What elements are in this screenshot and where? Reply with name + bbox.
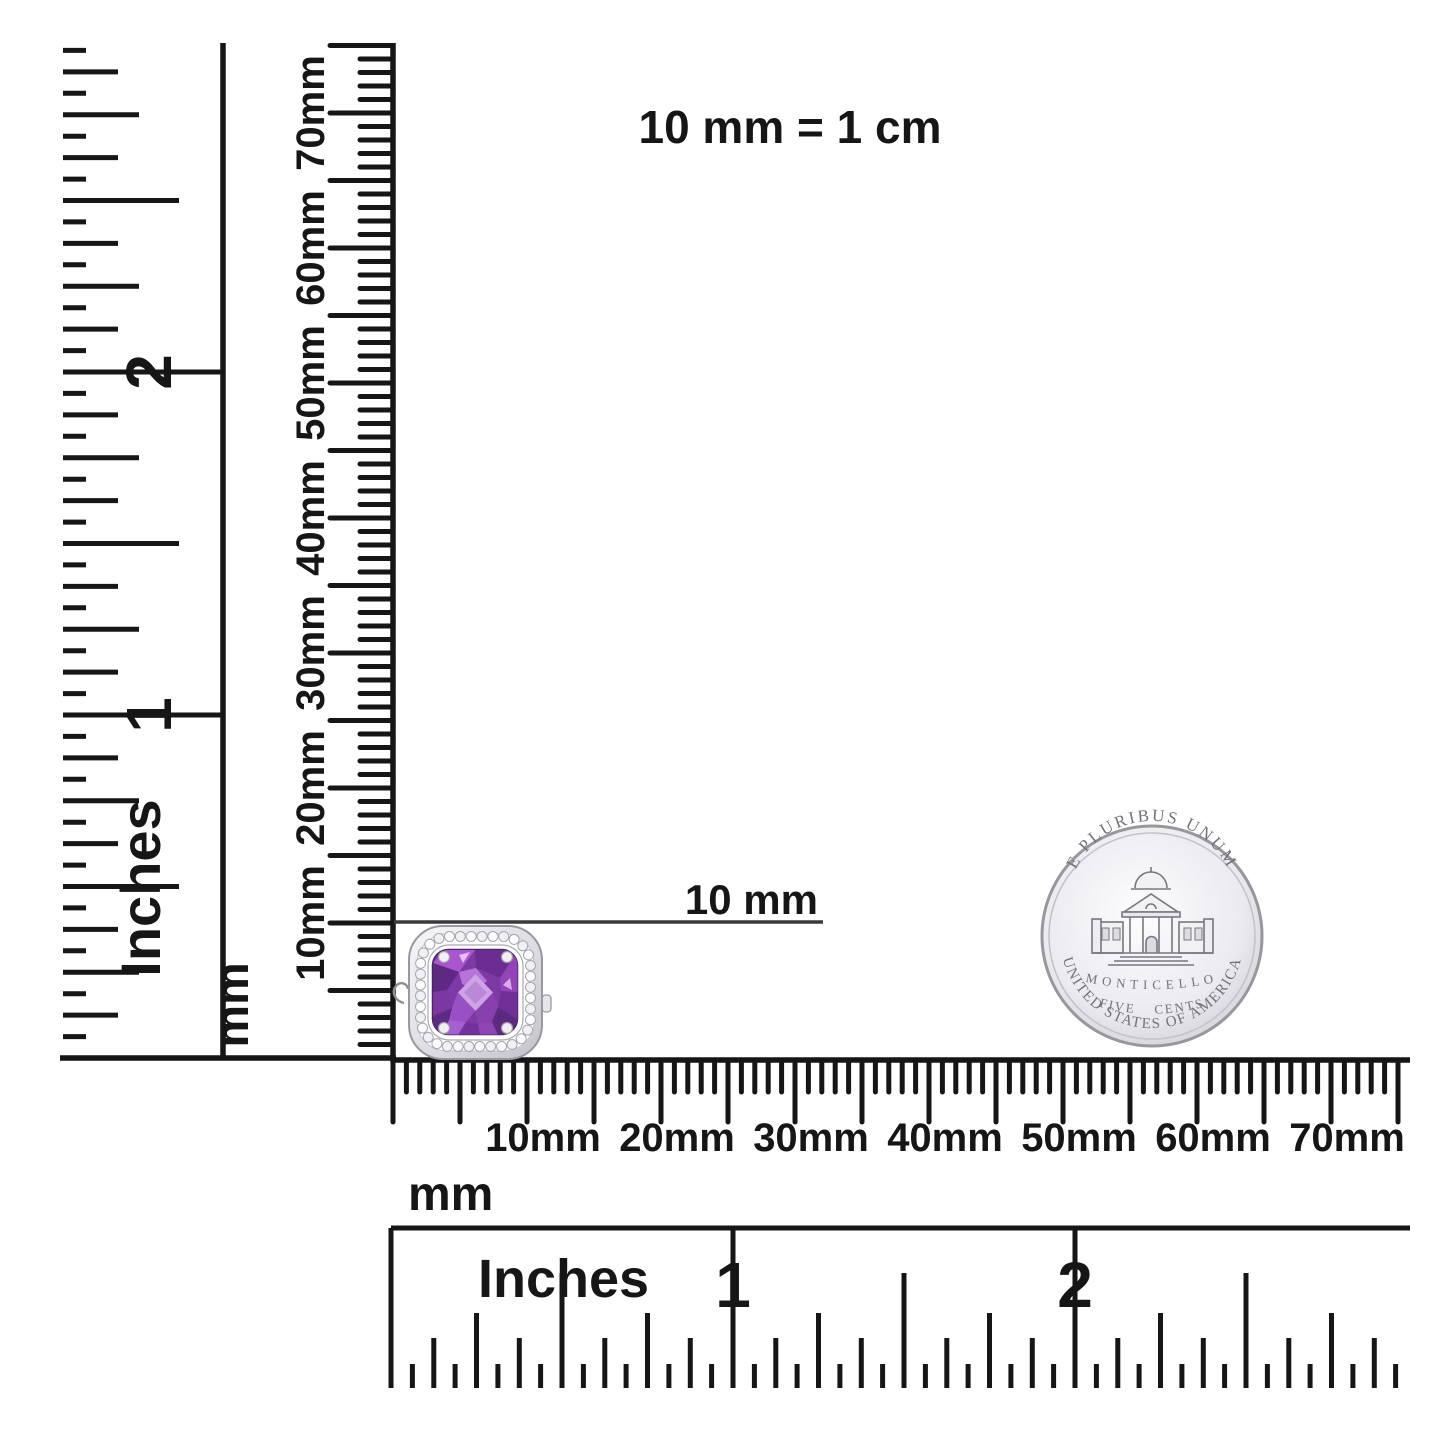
gem-prong [502, 952, 513, 963]
halo-diamond [442, 1041, 452, 1051]
bottom-mm-labels: 10mm20mm30mm40mm50mm60mm70mm [485, 1116, 1405, 1160]
amethyst-gem [433, 950, 519, 1036]
mm-label: 30mm [289, 595, 333, 711]
mm-label: 50mm [1021, 1116, 1137, 1160]
size-annotation-label: 10 mm [685, 876, 818, 923]
vertical-inches-ruler: 12 Inches [60, 43, 396, 1058]
mm-label: 70mm [1289, 1116, 1405, 1160]
halo-diamond [486, 1042, 496, 1052]
vertical-inches-unit-label: Inches [109, 799, 172, 976]
mm-label: 40mm [289, 460, 333, 576]
halo-diamond [524, 950, 534, 960]
vertical-mm-labels: 10mm20mm30mm40mm50mm60mm70mm [289, 55, 333, 981]
halo-diamond [526, 961, 536, 971]
halo-diamond [525, 1015, 535, 1025]
halo-diamond [497, 1042, 507, 1052]
gem-prong [439, 1023, 450, 1034]
halo-diamond [488, 932, 498, 942]
halo-diamond [416, 1002, 426, 1012]
halo-diamond [466, 932, 476, 942]
halo-diamond [416, 991, 426, 1001]
halo-diamond [526, 982, 536, 992]
inch-number: 2 [1057, 1249, 1093, 1321]
mm-label: 20mm [289, 730, 333, 846]
halo-diamond [526, 993, 536, 1003]
halo-diamond [518, 941, 528, 951]
halo-diamond [475, 1042, 485, 1052]
mm-label: 20mm [619, 1116, 735, 1160]
halo-diamond [416, 1013, 426, 1023]
halo-diamond [526, 971, 536, 981]
bottom-mm-ticks [393, 1060, 1398, 1122]
size-annotation: 10 mm [394, 876, 823, 923]
halo-diamond [432, 1039, 442, 1049]
mm-label: 50mm [289, 325, 333, 441]
halo-diamond [523, 1025, 533, 1035]
measurement-scene: 12 Inches 10mm20mm30mm40mm50mm60mm70mm m… [0, 0, 1445, 1445]
inch-number: 2 [113, 354, 185, 390]
mm-label: 60mm [289, 190, 333, 306]
inch-number: 1 [715, 1249, 751, 1321]
halo-diamond [418, 948, 428, 958]
gem-prong [502, 1023, 513, 1034]
bottom-inches-unit-label: Inches [478, 1249, 649, 1309]
halo-diamond [464, 1042, 474, 1052]
mm-label: 10mm [289, 865, 333, 981]
gem-prong [439, 952, 450, 963]
mm-label: 30mm [753, 1116, 869, 1160]
halo-diamond [477, 932, 487, 942]
bottom-mm-ruler: 10mm20mm30mm40mm50mm60mm70mm mm [393, 1060, 1410, 1221]
halo-diamond [526, 1004, 536, 1014]
mm-label: 70mm [289, 55, 333, 171]
halo-diamond [455, 932, 465, 942]
halo-diamond [516, 1034, 526, 1044]
inch-number: 1 [113, 697, 185, 733]
earring-hook [394, 983, 408, 1003]
mm-label: 60mm [1155, 1116, 1271, 1160]
bottom-inches-ruler: 12 Inches [391, 1228, 1410, 1388]
halo-diamond [445, 932, 455, 942]
scale-note: 10 mm = 1 cm [638, 101, 941, 153]
halo-diamond [509, 934, 519, 944]
earring-hinge [542, 995, 551, 1012]
nickel-coin: E PLURIBUS UNUM UNITED STATES OF AMERICA… [1042, 806, 1262, 1046]
vertical-mm-ruler: 10mm20mm30mm40mm50mm60mm70mm mm [206, 43, 393, 1062]
halo-diamond [453, 1042, 463, 1052]
halo-diamond [499, 932, 509, 942]
halo-diamond [416, 969, 426, 979]
halo-diamond [416, 958, 426, 968]
halo-diamond [423, 1032, 433, 1042]
halo-diamond [425, 939, 435, 949]
bottom-mm-unit-label: mm [408, 1168, 493, 1221]
mm-label: 40mm [887, 1116, 1003, 1160]
halo-diamond [418, 1023, 428, 1033]
halo-diamond [416, 980, 426, 990]
vertical-mm-ticks [330, 46, 393, 1045]
mm-label: 10mm [485, 1116, 601, 1160]
amethyst-halo-jewelry [394, 926, 551, 1059]
halo-diamond [434, 934, 444, 944]
halo-diamond [507, 1040, 517, 1050]
vertical-mm-unit-label: mm [206, 962, 259, 1047]
